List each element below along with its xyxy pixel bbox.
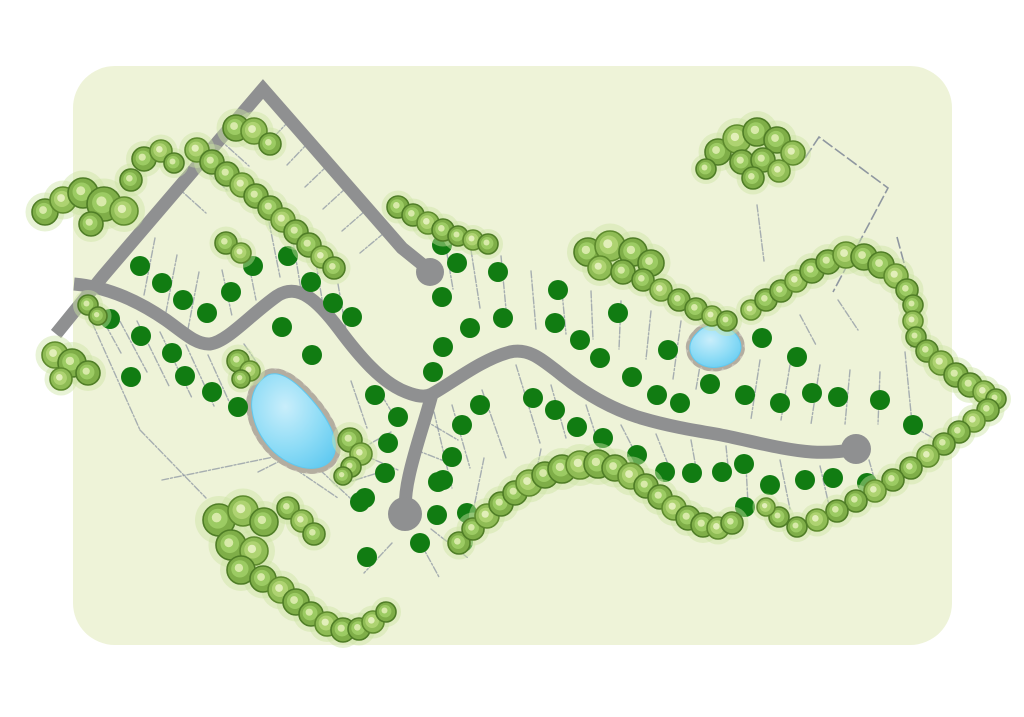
tree-canopy-highlight [641, 481, 648, 488]
tree-canopy-highlight [762, 503, 767, 508]
tree-canopy-highlight [793, 523, 799, 529]
tree-canopy-highlight [139, 154, 146, 161]
tree-canopy-highlight [812, 515, 819, 522]
cul-de-sac-3 [841, 434, 871, 464]
tree [164, 153, 184, 173]
tree-canopy-highlight [936, 358, 943, 365]
lot-marker[interactable] [162, 343, 182, 363]
tree-canopy-highlight [954, 427, 961, 434]
tree-canopy-highlight [66, 357, 74, 365]
tree-canopy-highlight [875, 259, 883, 267]
lot-marker[interactable] [357, 547, 377, 567]
lot-marker[interactable] [342, 307, 362, 327]
lot-marker[interactable] [570, 330, 590, 350]
lot-marker[interactable] [442, 447, 462, 467]
cul-de-sac-1 [416, 258, 444, 286]
tree-canopy-highlight [656, 285, 663, 292]
tree-canopy-highlight [56, 374, 63, 381]
tree-canopy-highlight [788, 148, 795, 155]
tree-canopy-highlight [309, 529, 316, 536]
tree-canopy-highlight [618, 267, 625, 274]
tree-canopy-highlight [708, 312, 714, 318]
tree-canopy-highlight [290, 596, 298, 604]
tree [376, 602, 396, 622]
tree-canopy-highlight [840, 249, 848, 257]
lot-marker[interactable] [447, 253, 467, 273]
lot-marker[interactable] [670, 393, 690, 413]
tree-canopy-highlight [251, 191, 258, 198]
tree-canopy-highlight [438, 225, 445, 232]
lot-marker[interactable] [735, 385, 755, 405]
tree-canopy-highlight [510, 488, 517, 495]
tree-canopy-highlight [468, 524, 475, 531]
tree-canopy-highlight [257, 573, 265, 581]
tree-canopy-highlight [669, 503, 676, 510]
tree-canopy-highlight [304, 240, 311, 247]
tree-canopy-highlight [368, 617, 375, 624]
tree-canopy-highlight [723, 317, 729, 323]
lot-marker[interactable] [682, 463, 702, 483]
tree-canopy-highlight [923, 451, 930, 458]
lot-marker[interactable] [365, 385, 385, 405]
tree-canopy-highlight [339, 472, 344, 477]
tree-canopy-highlight [345, 435, 352, 442]
tree-canopy-highlight [275, 584, 283, 592]
lot-marker[interactable] [523, 388, 543, 408]
lot-marker[interactable] [470, 395, 490, 415]
tree-canopy-highlight [888, 475, 895, 482]
lot-marker[interactable] [545, 400, 565, 420]
tree-canopy-highlight [791, 276, 798, 283]
tree-canopy-highlight [979, 387, 986, 394]
site-plan-page [0, 0, 1024, 717]
tree-canopy-highlight [595, 263, 602, 270]
tree-canopy-highlight [712, 146, 720, 154]
tree-canopy-highlight [356, 449, 363, 456]
tree-canopy-highlight [306, 609, 313, 616]
tree [79, 212, 103, 236]
tree-canopy-highlight [969, 416, 976, 423]
lot-marker[interactable] [795, 470, 815, 490]
tree-canopy-highlight [382, 608, 388, 614]
tree-canopy-highlight [237, 180, 244, 187]
tree [334, 467, 352, 485]
tree-canopy-highlight [731, 133, 739, 141]
lot-marker[interactable] [647, 385, 667, 405]
lot-marker[interactable] [770, 393, 790, 413]
tree-canopy-highlight [84, 301, 90, 307]
tree-canopy-highlight [603, 239, 612, 248]
lot-marker[interactable] [433, 337, 453, 357]
tree-canopy-highlight [469, 236, 475, 242]
tree-canopy-highlight [698, 520, 705, 527]
lot-marker[interactable] [202, 382, 222, 402]
lot-marker[interactable] [173, 290, 193, 310]
lot-marker[interactable] [428, 472, 448, 492]
tree-canopy-highlight [212, 513, 222, 523]
tree-canopy-highlight [870, 486, 877, 493]
lot-marker[interactable] [427, 505, 447, 525]
tree [303, 523, 325, 545]
tree-canopy-highlight [49, 349, 57, 357]
tree-canopy-highlight [832, 506, 839, 513]
tree-canopy-highlight [761, 295, 768, 302]
lot-marker[interactable] [802, 383, 822, 403]
lot-marker[interactable] [350, 492, 370, 512]
tree-canopy-highlight [118, 205, 126, 213]
tree [323, 257, 345, 279]
lot-marker[interactable] [388, 407, 408, 427]
tree-canopy-highlight [57, 194, 65, 202]
tree-canopy-highlight [758, 155, 765, 162]
tree-canopy-highlight [39, 206, 47, 214]
tree-canopy-highlight [727, 518, 734, 525]
tree [231, 243, 251, 263]
tree-canopy-highlight [76, 186, 85, 195]
tree-canopy-highlight [322, 619, 329, 626]
tree [250, 508, 278, 536]
lot-marker[interactable] [221, 282, 241, 302]
tree-canopy-highlight [625, 470, 633, 478]
tree-canopy-highlight [338, 625, 345, 632]
lot-marker[interactable] [375, 463, 395, 483]
lot-marker[interactable] [760, 475, 780, 495]
tree [76, 361, 100, 385]
tree-canopy-highlight [94, 312, 99, 317]
lot-marker[interactable] [130, 256, 150, 276]
tree-canopy-highlight [574, 459, 582, 467]
tree [89, 307, 107, 325]
tree-canopy-highlight [775, 513, 781, 519]
tree [588, 256, 612, 280]
tree-canopy-highlight [192, 145, 199, 152]
tree-canopy-highlight [170, 159, 176, 165]
cul-de-sac-2 [388, 497, 422, 531]
tree-canopy-highlight [329, 263, 336, 270]
lot-marker[interactable] [197, 303, 217, 323]
lot-marker[interactable] [121, 367, 141, 387]
tree [826, 500, 848, 522]
tree-canopy-highlight [638, 275, 645, 282]
tree [721, 512, 743, 534]
tree-canopy-highlight [278, 215, 285, 222]
tree-canopy-highlight [909, 301, 915, 307]
tree-canopy-highlight [283, 503, 290, 510]
tree-canopy-highlight [248, 125, 256, 133]
lot-marker[interactable] [423, 362, 443, 382]
tree-canopy-highlight [454, 232, 460, 238]
tree [717, 311, 737, 331]
tree-canopy-highlight [891, 271, 898, 278]
tree-canopy-highlight [748, 173, 755, 180]
tree-canopy-highlight [408, 210, 415, 217]
tree-canopy-highlight [248, 545, 256, 553]
tree-canopy-highlight [556, 463, 564, 471]
lot-marker[interactable] [460, 318, 480, 338]
tree-canopy-highlight [674, 295, 681, 302]
tree-canopy-highlight [771, 134, 779, 142]
tree-canopy-highlight [265, 203, 272, 210]
tree [757, 498, 775, 516]
tree-canopy-highlight [224, 538, 233, 547]
lot-marker[interactable] [152, 273, 172, 293]
tree [120, 169, 142, 191]
tree-canopy-highlight [807, 266, 814, 273]
tree-canopy-highlight [655, 492, 662, 499]
tree-canopy-highlight [906, 463, 913, 470]
tree-canopy-highlight [737, 157, 744, 164]
tree [478, 234, 498, 254]
lot-marker[interactable] [493, 308, 513, 328]
lot-marker[interactable] [410, 533, 430, 553]
tree-canopy-highlight [645, 257, 653, 265]
lot-marker[interactable] [378, 433, 398, 453]
lot-marker[interactable] [622, 367, 642, 387]
lot-marker[interactable] [175, 366, 195, 386]
lot-marker[interactable] [700, 374, 720, 394]
tree [696, 159, 716, 179]
tree-canopy-highlight [858, 251, 866, 259]
lot-marker[interactable] [828, 387, 848, 407]
tree-canopy-highlight [454, 538, 461, 545]
tree-canopy-highlight [96, 196, 106, 206]
tree-canopy-highlight [230, 122, 238, 130]
tree-canopy-highlight [823, 257, 830, 264]
tree-canopy-highlight [702, 165, 708, 171]
tree-canopy-highlight [747, 306, 753, 312]
tree-canopy-highlight [221, 238, 228, 245]
tree-canopy-highlight [851, 496, 858, 503]
tree-canopy-highlight [297, 516, 304, 523]
tree-canopy-highlight [912, 333, 918, 339]
lot-marker[interactable] [302, 345, 322, 365]
lot-marker[interactable] [131, 326, 151, 346]
lot-marker[interactable] [590, 348, 610, 368]
tree-canopy-highlight [582, 246, 590, 254]
lot-marker[interactable] [301, 272, 321, 292]
tree [110, 197, 138, 225]
tree-canopy-highlight [482, 511, 489, 518]
lot-marker[interactable] [452, 415, 472, 435]
tree-canopy-highlight [909, 317, 915, 323]
tree-canopy-highlight [592, 458, 600, 466]
tree-canopy-highlight [951, 370, 958, 377]
tree [742, 167, 764, 189]
tree [50, 368, 72, 390]
lot-marker[interactable] [658, 340, 678, 360]
tree-canopy-highlight [265, 139, 272, 146]
tree-canopy-highlight [207, 157, 214, 164]
tree-canopy-highlight [291, 227, 298, 234]
tree-canopy-highlight [86, 219, 93, 226]
lot-marker[interactable] [548, 280, 568, 300]
tree-canopy-highlight [156, 146, 163, 153]
lot-marker[interactable] [608, 303, 628, 323]
tree-canopy-highlight [983, 405, 990, 412]
lot-marker[interactable] [432, 287, 452, 307]
tree-canopy-highlight [222, 169, 229, 176]
tree [787, 517, 807, 537]
tree-canopy-highlight [393, 202, 400, 209]
lot-marker[interactable] [228, 397, 248, 417]
tree-canopy-highlight [484, 240, 490, 246]
lot-marker[interactable] [870, 390, 890, 410]
lot-marker[interactable] [712, 462, 732, 482]
lot-marker[interactable] [272, 317, 292, 337]
tree-canopy-highlight [496, 499, 503, 506]
tree-canopy-highlight [902, 285, 909, 292]
tree-canopy-highlight [237, 249, 243, 255]
tree-canopy-highlight [774, 166, 781, 173]
lot-marker[interactable] [323, 293, 343, 313]
tree-canopy-highlight [233, 356, 240, 363]
tree [768, 160, 790, 182]
tree-canopy-highlight [523, 477, 531, 485]
tree-canopy-highlight [609, 462, 617, 470]
tree-canopy-highlight [713, 523, 720, 530]
tree-canopy-highlight [922, 346, 929, 353]
lot-marker[interactable] [567, 417, 587, 437]
tree-canopy-highlight [751, 126, 759, 134]
tree-canopy-highlight [691, 304, 698, 311]
tree-canopy-highlight [627, 246, 635, 254]
lot-marker[interactable] [488, 262, 508, 282]
tree-canopy-highlight [126, 175, 133, 182]
lot-marker[interactable] [752, 328, 772, 348]
tree-canopy-highlight [258, 516, 266, 524]
site-plan-map [0, 0, 1024, 717]
lot-marker[interactable] [734, 454, 754, 474]
tree-canopy-highlight [539, 469, 547, 477]
tree [806, 509, 828, 531]
tree-canopy-highlight [236, 504, 245, 513]
lot-marker[interactable] [787, 347, 807, 367]
tree-canopy-highlight [423, 218, 430, 225]
tree-canopy-highlight [965, 380, 972, 387]
lot-marker[interactable] [823, 468, 843, 488]
tree-canopy-highlight [683, 513, 690, 520]
tree-canopy-highlight [354, 624, 361, 631]
lot-marker[interactable] [545, 313, 565, 333]
tree [259, 133, 281, 155]
tree-canopy-highlight [776, 286, 783, 293]
tree-canopy-highlight [235, 564, 243, 572]
tree-canopy-highlight [939, 439, 946, 446]
tree [232, 370, 250, 388]
lot-marker[interactable] [903, 415, 923, 435]
tree-canopy-highlight [317, 252, 324, 259]
tree-canopy-highlight [237, 375, 242, 380]
tree-canopy-highlight [83, 368, 90, 375]
